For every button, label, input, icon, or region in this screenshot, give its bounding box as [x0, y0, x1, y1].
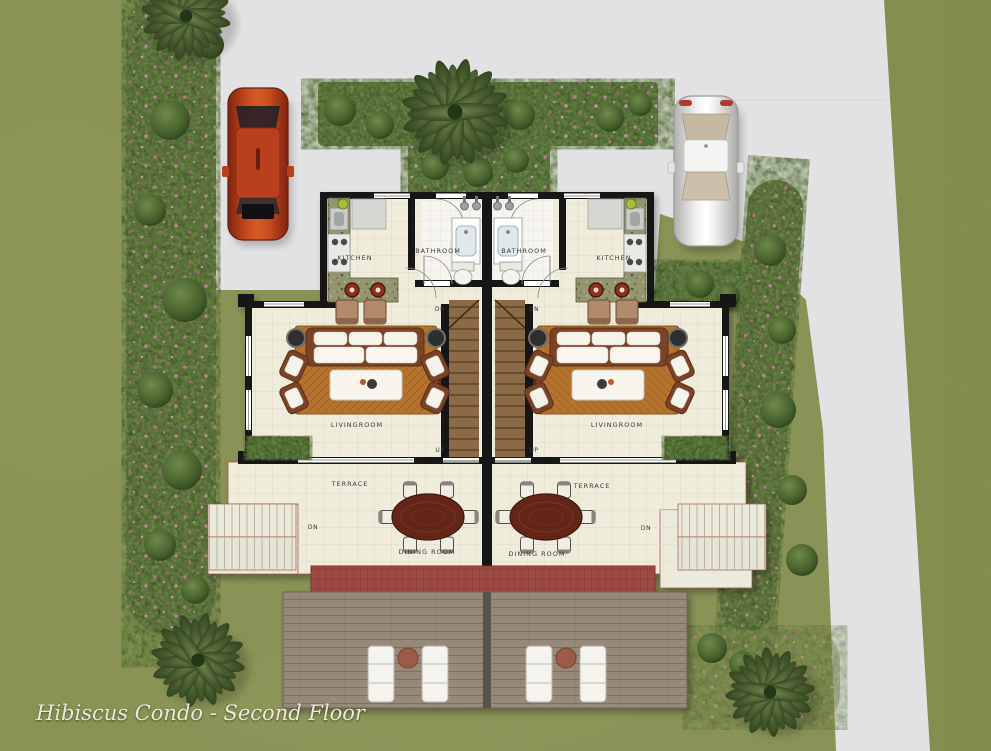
dining-table: [392, 494, 464, 540]
counter-plant: [338, 199, 348, 209]
ext-stair-down-left: DN: [308, 524, 318, 531]
speaker: [287, 329, 305, 347]
window-planter: [247, 437, 309, 459]
dining-label-right: DINING ROOM: [508, 550, 565, 558]
site-plan-stage: KITCHEN KITCHEN BATHROOM BATHROOM LIVING…: [0, 0, 991, 751]
plan-caption: Hibiscus Condo - Second Floor: [36, 701, 365, 725]
wood-deck: [283, 592, 687, 708]
livingroom-label-right: LIVINGROOM: [591, 421, 643, 429]
shower-head: [473, 202, 481, 210]
stair-up-right: UP: [529, 447, 538, 454]
toilet: [454, 270, 472, 285]
second-floor-site-plan: KITCHEN KITCHEN BATHROOM BATHROOM LIVING…: [0, 0, 991, 751]
kitchen-label-left: KITCHEN: [337, 254, 372, 262]
exterior-stairs: [208, 504, 296, 570]
dining-label-left: DINING ROOM: [398, 548, 455, 556]
living-room-furniture: [278, 326, 451, 415]
white-car: [668, 96, 744, 252]
stair-up-left: UP: [435, 447, 444, 454]
stair-down-right: DN: [529, 306, 539, 313]
bathroom-label-right: BATHROOM: [501, 247, 547, 255]
terrace-label-right: TERRACE: [573, 482, 611, 490]
stove: [328, 234, 350, 272]
stair-down-left: DN: [435, 306, 445, 313]
party-wall: [482, 192, 492, 574]
deck-table: [398, 648, 418, 668]
shower-head: [461, 202, 469, 210]
ext-stair-down-right: DN: [641, 525, 651, 532]
red-car: [222, 88, 294, 246]
fridge: [352, 199, 386, 229]
speaker: [427, 329, 445, 347]
livingroom-label-left: LIVINGROOM: [331, 421, 383, 429]
deck-divider: [483, 592, 491, 708]
bathroom-label-left: BATHROOM: [415, 247, 461, 255]
kitchen-label-right: KITCHEN: [596, 254, 631, 262]
terrace-label-left: TERRACE: [331, 480, 369, 488]
coffee-table: [330, 370, 402, 400]
